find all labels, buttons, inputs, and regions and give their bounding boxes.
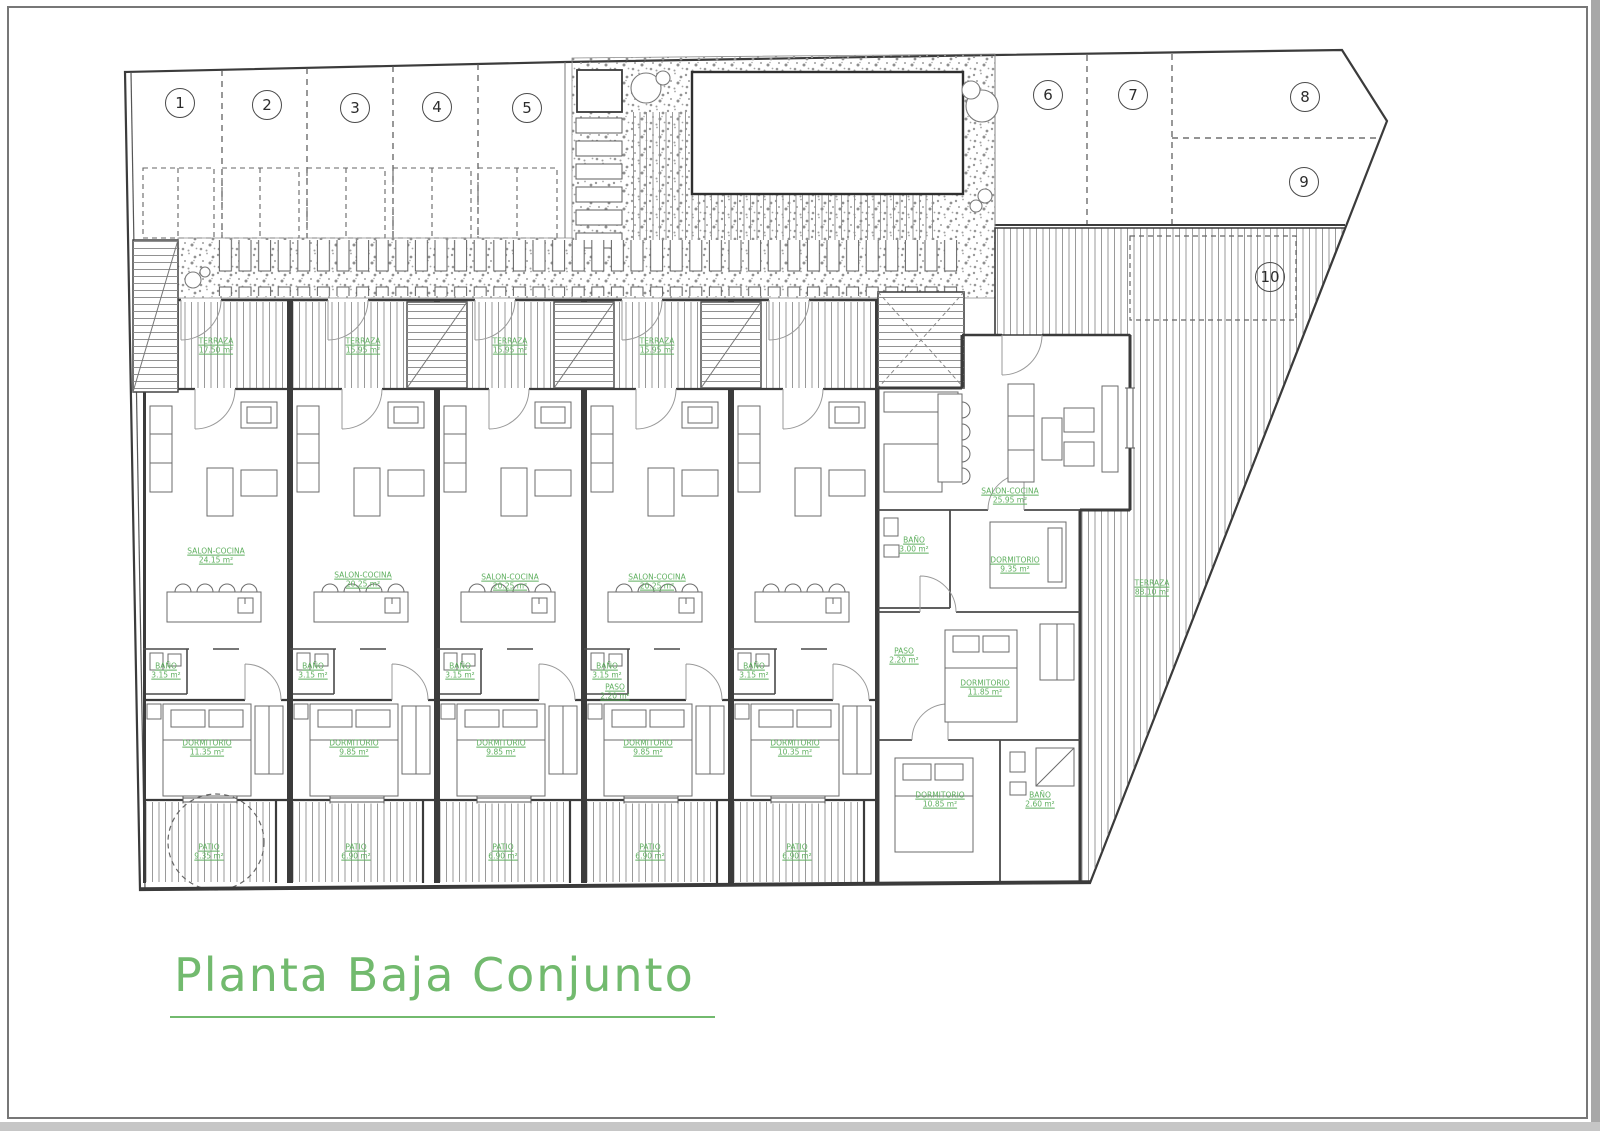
pool-shower-room <box>577 70 622 112</box>
parking-space-number-4: 4 <box>422 92 452 122</box>
stairs-a <box>407 302 467 388</box>
parking-space-number-8: 8 <box>1290 82 1320 112</box>
stairs-left <box>133 240 178 392</box>
floor-plan-sheet: 12345678910 TERRAZA17.50 m²TERRAZA15.95 … <box>0 0 1600 1131</box>
parking-space-number-9: 9 <box>1289 167 1319 197</box>
parking-space-number-10: 10 <box>1255 262 1285 292</box>
parking-space-number-7: 7 <box>1118 80 1148 110</box>
parking-space-number-5: 5 <box>512 93 542 123</box>
parking-space-number-3: 3 <box>340 93 370 123</box>
parking-space-number-1: 1 <box>165 88 195 118</box>
stairs-main <box>878 292 964 388</box>
swimming-pool <box>692 72 963 194</box>
stairs-c <box>701 302 761 388</box>
parking-space-number-6: 6 <box>1033 80 1063 110</box>
scan-edge-right <box>1591 0 1600 1131</box>
walkway-planks <box>214 240 958 296</box>
scan-edge-bottom <box>0 1122 1600 1131</box>
parking-space-number-2: 2 <box>252 90 282 120</box>
plan-title: Planta Baja Conjunto <box>170 948 715 1018</box>
stairs-b <box>554 302 614 388</box>
